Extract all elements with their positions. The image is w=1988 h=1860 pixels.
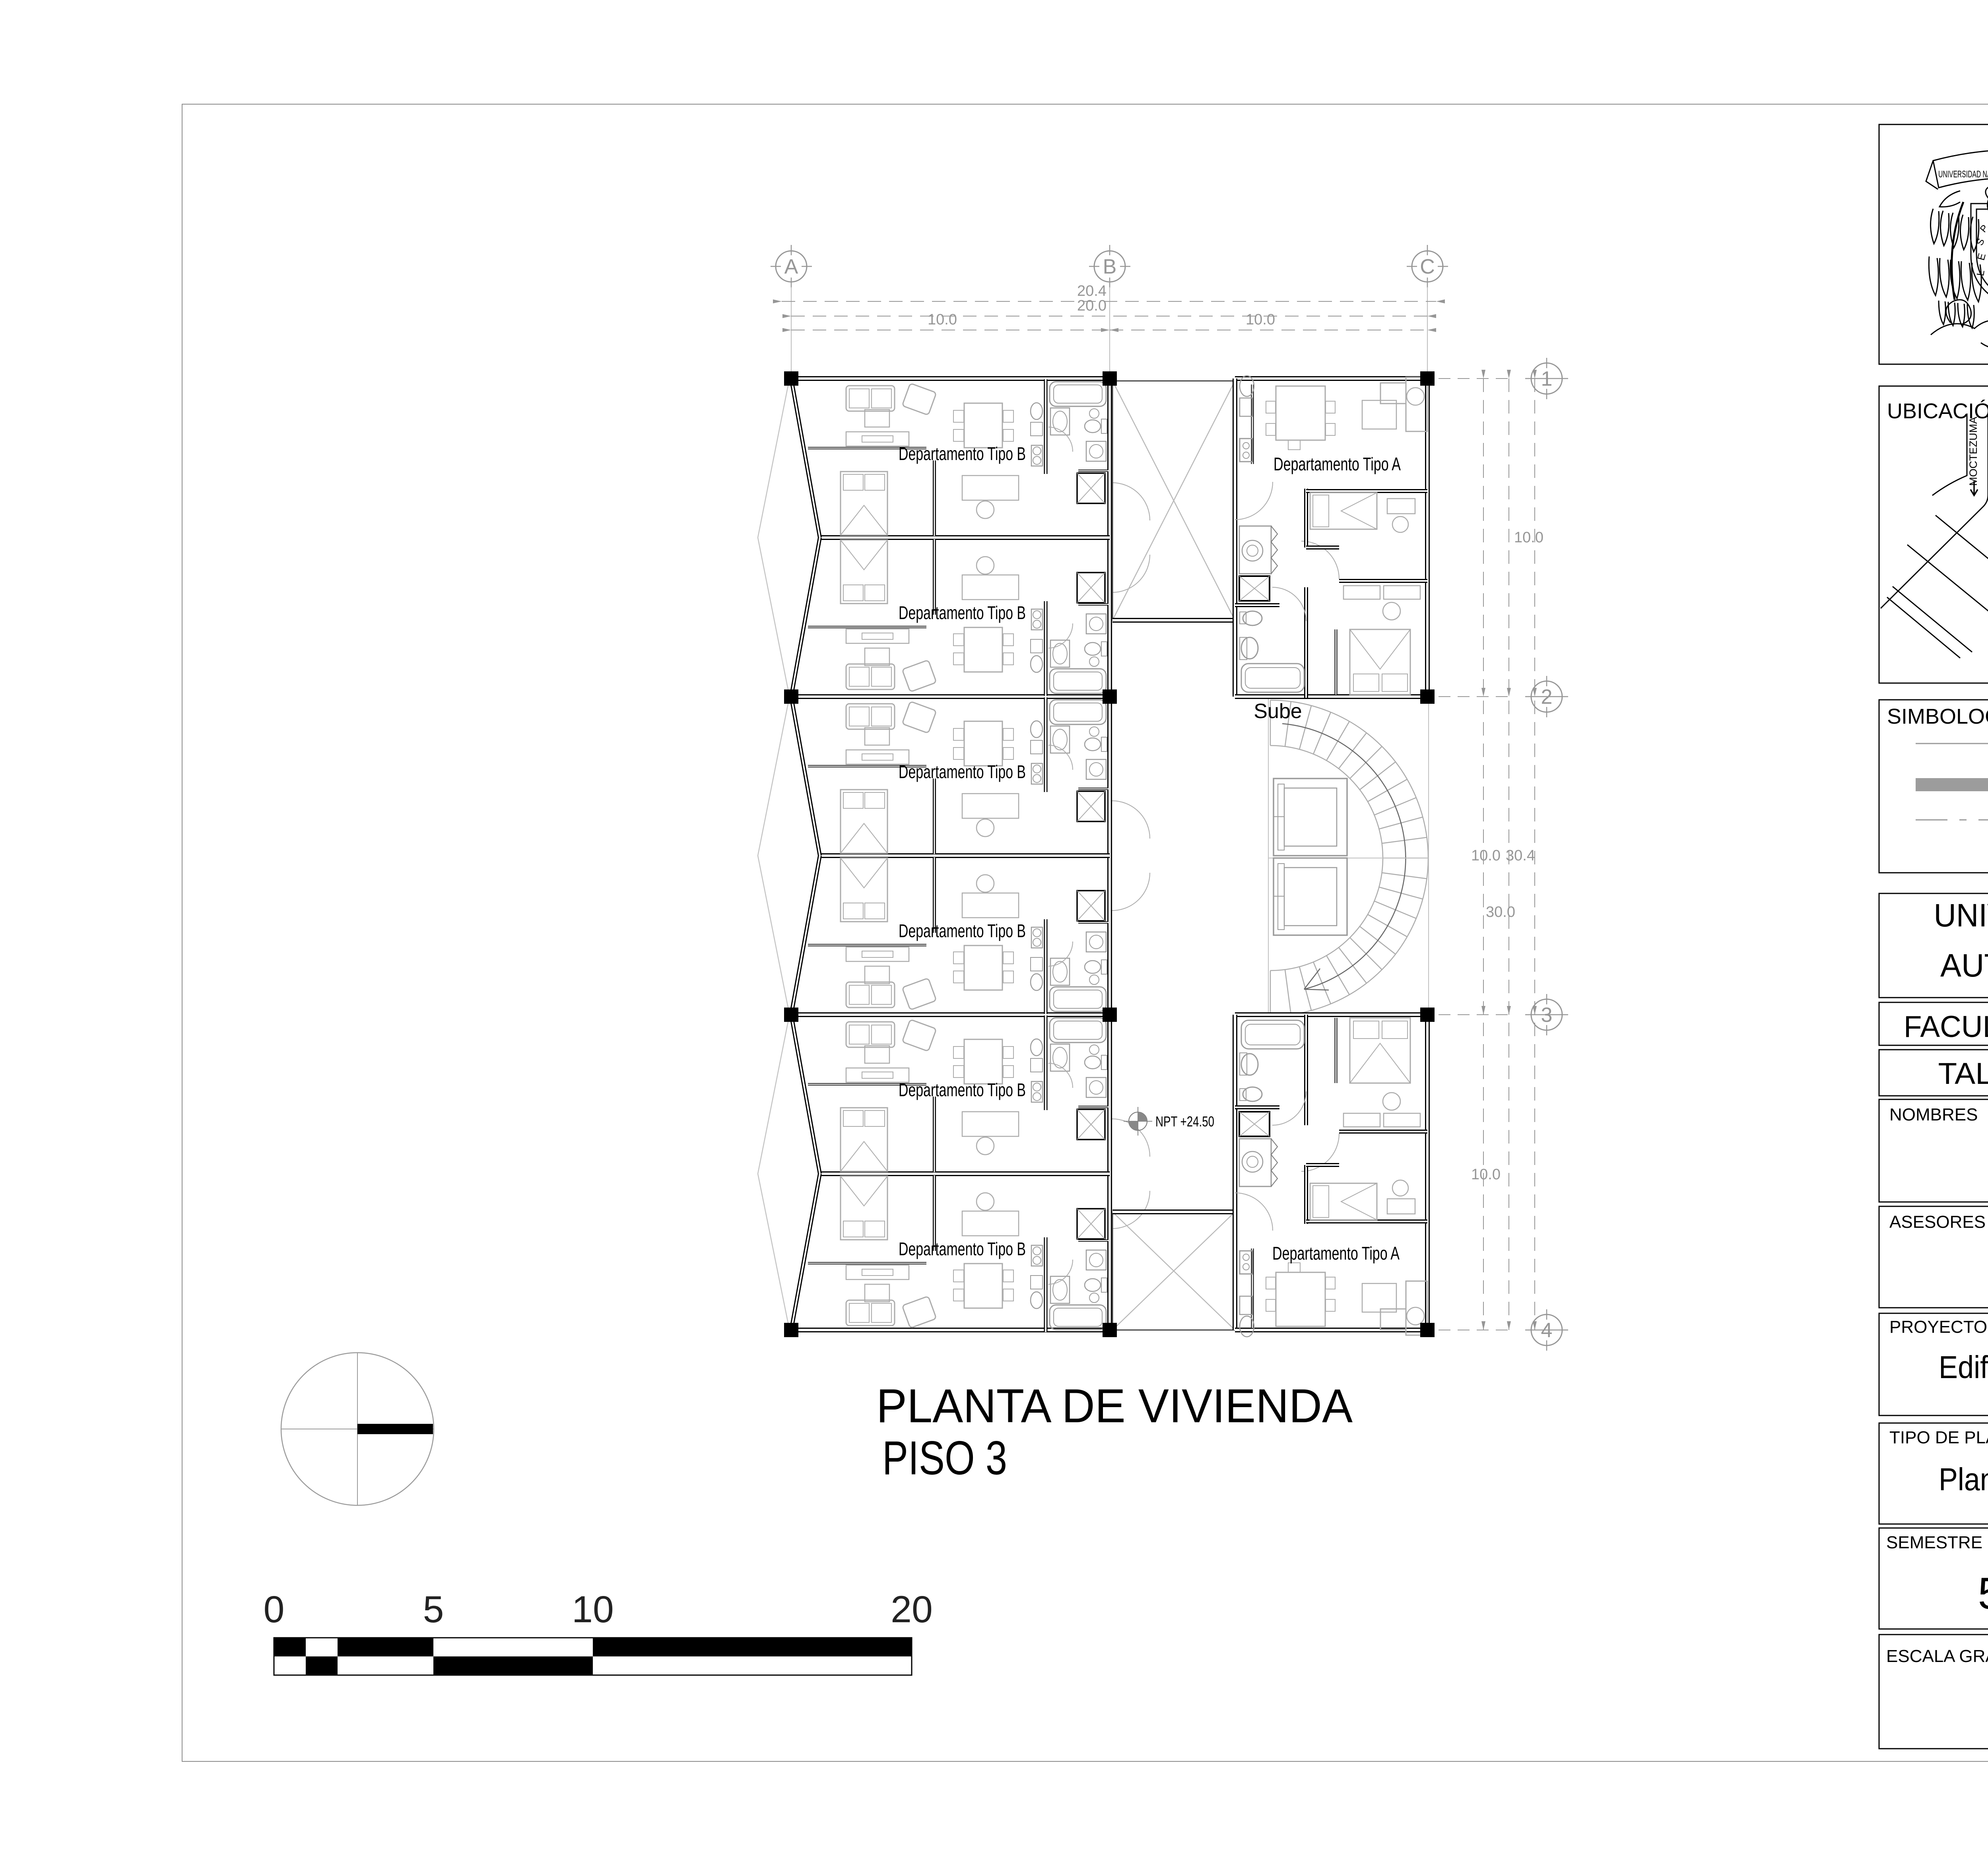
svg-text:B: B	[1103, 255, 1117, 278]
svg-text:Departamento Tipo B: Departamento Tipo B	[899, 1079, 1026, 1100]
svg-text:A: A	[784, 255, 798, 278]
svg-text:Sube: Sube	[1254, 700, 1302, 723]
svg-text:10.0: 10.0	[1514, 529, 1543, 546]
svg-text:10.0: 10.0	[1246, 311, 1275, 328]
svg-text:Departamento Tipo B: Departamento Tipo B	[899, 443, 1026, 464]
svg-text:30.4: 30.4	[1506, 847, 1535, 864]
svg-text:5°: 5°	[1978, 1569, 1988, 1618]
svg-text:Edificio de uso mixto: Edificio de uso mixto	[1939, 1349, 1988, 1385]
svg-text:ESCALA GRÁFICA: ESCALA GRÁFICA	[1886, 1646, 1988, 1666]
svg-text:30.0: 30.0	[1486, 904, 1515, 920]
svg-text:ASESORES: ASESORES	[1889, 1212, 1986, 1232]
svg-text:NPT +24.50: NPT +24.50	[1155, 1113, 1214, 1130]
svg-text:10.0: 10.0	[1471, 1166, 1501, 1183]
svg-text:5: 5	[423, 1588, 444, 1631]
svg-text:Departamento Tipo B: Departamento Tipo B	[899, 920, 1026, 941]
svg-text:Departamento Tipo B: Departamento Tipo B	[899, 761, 1026, 782]
svg-text:10.0: 10.0	[928, 311, 957, 328]
svg-text:TIPO DE PLANO: TIPO DE PLANO	[1889, 1428, 1988, 1447]
svg-text:20.0: 20.0	[1077, 297, 1107, 314]
svg-text:Departamento Tipo A: Departamento Tipo A	[1272, 1243, 1400, 1264]
svg-text:UNIVERSIDAD NACIONAL: UNIVERSIDAD NACIONAL	[1934, 897, 1988, 934]
svg-text:0: 0	[264, 1588, 285, 1631]
svg-text:2: 2	[1541, 685, 1553, 709]
svg-text:TALLER HANNES MEYER: TALLER HANNES MEYER	[1938, 1057, 1988, 1091]
svg-text:UNIVERSIDAD NACIONAL AUTONOMA: UNIVERSIDAD NACIONAL AUTONOMA D MEXICO	[1938, 169, 1988, 180]
svg-text:PLANTA DE VIVIENDA: PLANTA DE VIVIENDA	[876, 1379, 1353, 1433]
svg-text:FACULTAD DE ARQUITECTURA: FACULTAD DE ARQUITECTURA	[1904, 1010, 1988, 1044]
svg-text:C: C	[1420, 255, 1435, 278]
svg-text:Departamento Tipo B: Departamento Tipo B	[899, 602, 1026, 623]
svg-text:10.0: 10.0	[1471, 847, 1501, 864]
svg-text:NOMBRES: NOMBRES	[1889, 1105, 1978, 1124]
svg-text:Departamento Tipo B: Departamento Tipo B	[899, 1239, 1026, 1259]
svg-text:MOCTEZUMA: MOCTEZUMA	[1967, 417, 1979, 486]
svg-text:3: 3	[1541, 1004, 1553, 1027]
svg-text:Planta de techo: Planta de techo	[1939, 1462, 1988, 1497]
svg-text:4: 4	[1541, 1319, 1553, 1342]
svg-text:PROYECTO: PROYECTO	[1889, 1317, 1987, 1337]
svg-text:Departamento Tipo A: Departamento Tipo A	[1274, 454, 1401, 474]
svg-text:1: 1	[1541, 367, 1553, 390]
svg-text:PISO 3: PISO 3	[882, 1431, 1007, 1485]
svg-text:10: 10	[572, 1588, 614, 1631]
svg-text:AUTÓNOMA DE MÉXICO: AUTÓNOMA DE MÉXICO	[1940, 947, 1988, 984]
svg-text:SIMBOLOGÍA: SIMBOLOGÍA	[1887, 705, 1988, 728]
svg-text:20.4: 20.4	[1077, 283, 1107, 299]
svg-text:SEMESTRE: SEMESTRE	[1886, 1533, 1982, 1552]
svg-text:20: 20	[891, 1588, 933, 1631]
